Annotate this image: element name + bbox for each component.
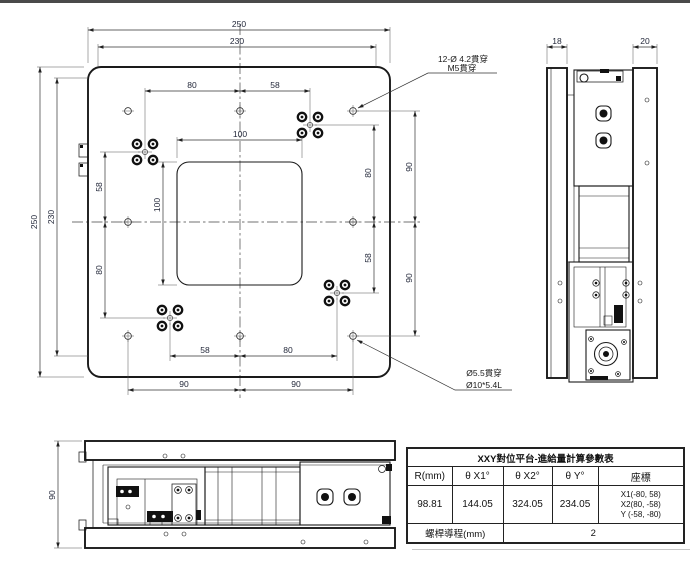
dim-left-80: 80 [94,265,104,275]
side-mid-section [579,186,629,262]
dim-hole-span-width: 230 [230,36,244,46]
value-theta-y: 234.05 [552,486,598,524]
side-right-plate [633,68,657,378]
parameter-table: XXY對位平台-進給量計算參數表 R(mm) θ X1° θ X2° θ Y° … [406,447,685,544]
side-view: 18 20 [547,36,657,382]
side-left-plate [547,68,567,378]
dim-overall-width: 250 [232,19,246,29]
dim-right-58: 58 [363,253,373,263]
left-edge-tabs [79,144,88,176]
dim-right-90-bottom: 90 [404,273,414,283]
top-view: 250 230 80 58 100 250 230 58 80 100 80 5… [29,19,512,398]
col-header-theta-x1: θ X1° [452,467,503,486]
col-header-r: R(mm) [407,467,452,486]
coord-x1: X1(-80, 58) [599,490,684,500]
value-r: 98.81 [407,486,452,524]
top-border-bar [0,0,690,3]
extension-lines [37,27,420,395]
value-theta-x1: 144.05 [452,486,503,524]
coord-y: Y (-58, -80) [599,510,684,520]
dim-side-left-plate: 18 [552,36,562,46]
col-header-theta-x2: θ X2° [503,467,552,486]
side-motor [586,330,630,380]
value-coords: X1(-80, 58) X2(80, -58) Y (-58, -80) [598,486,684,524]
front-top-plate [85,441,395,460]
dim-overall-height: 250 [29,215,39,229]
side-lower-frame [569,262,633,382]
dim-top-58: 58 [270,80,280,90]
dim-left-58: 58 [94,182,104,192]
front-bottom-plate [85,528,395,548]
side-center-body [567,69,633,262]
side-plate-holes [558,98,649,303]
col-header-coords: 座標 [598,467,684,486]
centerlines [72,24,421,398]
front-left-mechanism [108,467,205,525]
dim-top-80: 80 [187,80,197,90]
dim-side-right-plate: 20 [640,36,650,46]
center-opening [177,162,302,285]
callout-counterbore: Ø5.5貫穿 Ø10*5.4L [357,340,512,390]
callout-cbore-line2: Ø10*5.4L [466,380,502,390]
dim-opening-height: 100 [152,198,162,212]
callout-m5-line2: M5貫穿 [448,63,477,73]
dim-bottom-58: 58 [200,345,210,355]
front-middle-rails [205,467,300,525]
dim-right-90-top: 90 [404,162,414,172]
dim-right-80: 80 [363,168,373,178]
dim-bottom-90-left: 90 [179,379,189,389]
lead-screw-label: 螺桿導程(mm) [407,524,503,544]
dim-front-height: 90 [47,490,57,500]
dim-bottom-80: 80 [283,345,293,355]
callout-cbore-line1: Ø5.5貫穿 [466,368,501,378]
coord-x2: X2(80, -58) [599,500,684,510]
drawing-sheet: 250 230 80 58 100 250 230 58 80 100 80 5… [0,0,690,563]
mounting-holes [122,105,359,342]
sheet-bottom-rule [412,549,690,550]
value-theta-x2: 324.05 [503,486,552,524]
front-right-box [300,462,392,525]
col-header-theta-y: θ Y° [552,467,598,486]
front-view: 90 [47,441,395,548]
dim-hole-span-height: 230 [46,210,56,224]
table-title: XXY對位平台-進給量計算參數表 [407,448,684,467]
dim-bottom-90-right: 90 [291,379,301,389]
dim-opening-width: 100 [233,129,247,139]
lead-screw-value: 2 [503,524,684,544]
callout-m5-holes: 12-Ø 4.2貫穿 M5貫穿 [358,54,497,108]
